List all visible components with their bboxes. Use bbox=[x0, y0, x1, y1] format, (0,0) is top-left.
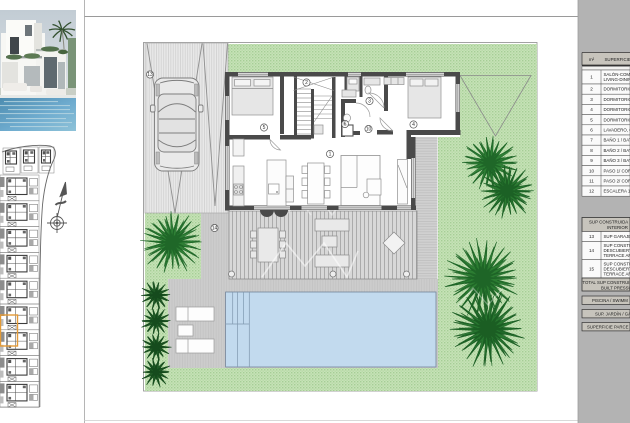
svg-text:SUP. JARDÍN / GA: SUP. JARDÍN / GA bbox=[595, 311, 630, 316]
svg-text:PASO 1/ CORRID: PASO 1/ CORRID bbox=[604, 168, 630, 173]
svg-text:INTERIOR: INTERIOR bbox=[607, 225, 628, 230]
svg-text:PASO 2/ CORRID: PASO 2/ CORRID bbox=[604, 179, 630, 184]
svg-text:LIVING-DINING RO: LIVING-DINING RO bbox=[604, 77, 630, 82]
svg-text:SUP GARAJE / GA: SUP GARAJE / GA bbox=[604, 234, 630, 239]
svg-text:TERRACE AREA 2: TERRACE AREA 2 bbox=[604, 271, 630, 276]
svg-text:LAVADERO, COCI: LAVADERO, COCI bbox=[604, 128, 630, 133]
svg-text:5: 5 bbox=[590, 117, 593, 122]
svg-text:15: 15 bbox=[589, 266, 595, 271]
svg-text:DORMITORIO 1 /: DORMITORIO 1 / bbox=[604, 87, 630, 92]
svg-text:14: 14 bbox=[589, 248, 595, 253]
svg-text:1: 1 bbox=[329, 152, 332, 158]
svg-text:BAÑO 2 / BATHRO: BAÑO 2 / BATHRO bbox=[604, 148, 630, 153]
svg-text:2: 2 bbox=[305, 80, 308, 86]
svg-text:4: 4 bbox=[412, 122, 415, 128]
svg-text:11: 11 bbox=[589, 179, 594, 184]
svg-text:9: 9 bbox=[590, 158, 593, 163]
svg-text:10: 10 bbox=[366, 127, 372, 133]
svg-text:8: 8 bbox=[590, 148, 593, 153]
svg-text:SUPERFICIE PARCE: SUPERFICIE PARCE bbox=[587, 324, 629, 329]
svg-text:4: 4 bbox=[590, 107, 593, 112]
svg-text:13: 13 bbox=[589, 234, 595, 239]
svg-text:3: 3 bbox=[368, 99, 371, 105]
svg-text:m²: m² bbox=[589, 57, 595, 62]
svg-text:SUPERFICIES ÚTILES: SUPERFICIES ÚTILES bbox=[605, 57, 630, 62]
svg-text:12: 12 bbox=[589, 189, 595, 194]
svg-text:BAÑO 3 / BATHRO: BAÑO 3 / BATHRO bbox=[604, 158, 630, 163]
svg-text:DORMITORIO 2 /: DORMITORIO 2 / bbox=[604, 97, 630, 102]
svg-text:BAÑO 1 / BATHRO: BAÑO 1 / BATHRO bbox=[604, 138, 630, 143]
svg-text:5: 5 bbox=[263, 125, 266, 131]
svg-text:13: 13 bbox=[147, 72, 153, 78]
svg-text:6: 6 bbox=[590, 128, 593, 133]
svg-text:7: 7 bbox=[590, 138, 593, 143]
svg-text:DORMITORIO 4 /: DORMITORIO 4 / bbox=[604, 117, 630, 122]
svg-text:14: 14 bbox=[212, 226, 218, 232]
svg-text:BUILT PRESSU: BUILT PRESSU bbox=[601, 286, 630, 291]
svg-text:SUP CONSTRUIDA: SUP CONSTRUIDA bbox=[589, 220, 628, 225]
svg-text:2: 2 bbox=[590, 87, 593, 92]
svg-text:ESCALERA 1 / ST: ESCALERA 1 / ST bbox=[604, 189, 630, 194]
svg-text:10: 10 bbox=[589, 168, 595, 173]
svg-text:TERRACE AREA 1: TERRACE AREA 1 bbox=[604, 253, 630, 258]
svg-text:TOTAL SUP CONSTRUIDA: TOTAL SUP CONSTRUIDA bbox=[583, 280, 630, 285]
svg-text:DORMITORIO 3 /: DORMITORIO 3 / bbox=[604, 107, 630, 112]
svg-text:1: 1 bbox=[590, 75, 593, 80]
svg-text:6: 6 bbox=[344, 122, 347, 128]
svg-text:PISCINA / SWIMM: PISCINA / SWIMM bbox=[592, 298, 628, 303]
svg-text:3: 3 bbox=[590, 97, 593, 102]
